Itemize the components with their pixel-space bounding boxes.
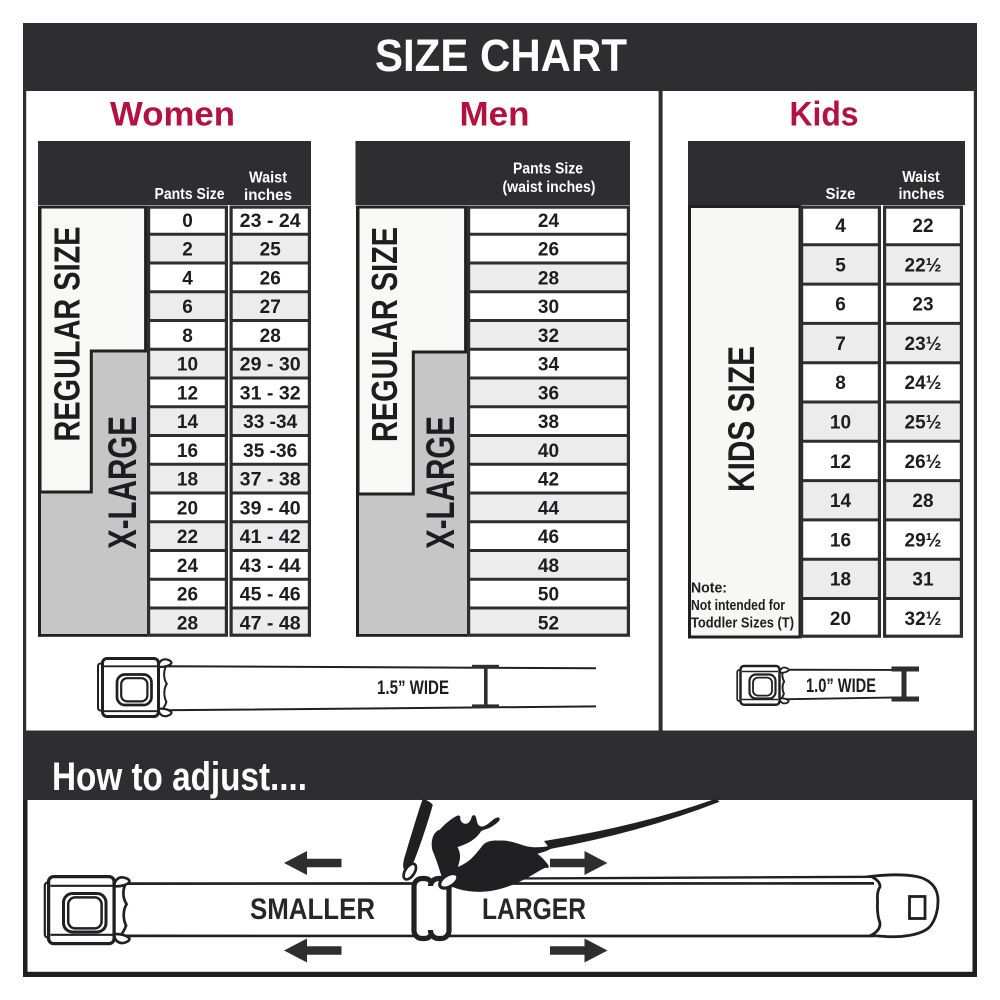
svg-text:7: 7 <box>835 334 846 355</box>
svg-text:18: 18 <box>830 570 851 591</box>
svg-text:44: 44 <box>538 498 560 519</box>
svg-text:8: 8 <box>835 373 846 394</box>
svg-text:26: 26 <box>177 585 198 606</box>
svg-text:36: 36 <box>538 383 559 404</box>
svg-text:Note:: Note: <box>691 581 727 597</box>
svg-text:25: 25 <box>260 240 282 261</box>
svg-text:REGULAR SIZE: REGULAR SIZE <box>364 227 405 442</box>
svg-text:Pants Size: Pants Size <box>513 161 583 178</box>
svg-text:24: 24 <box>538 211 560 232</box>
svg-text:52: 52 <box>538 613 559 634</box>
svg-text:Waist: Waist <box>249 170 288 187</box>
svg-text:27: 27 <box>260 297 281 318</box>
svg-text:(waist inches): (waist inches) <box>503 179 596 196</box>
svg-text:16: 16 <box>177 441 198 462</box>
svg-text:48: 48 <box>538 556 559 577</box>
svg-text:28: 28 <box>538 268 559 289</box>
svg-text:10: 10 <box>177 355 198 376</box>
svg-text:28: 28 <box>177 613 198 634</box>
svg-text:28: 28 <box>912 491 933 512</box>
svg-text:LARGER: LARGER <box>482 893 586 926</box>
svg-text:Men: Men <box>460 96 530 134</box>
svg-text:23½: 23½ <box>905 334 942 355</box>
svg-text:Not intended for: Not intended for <box>691 598 785 614</box>
svg-text:24½: 24½ <box>905 373 942 394</box>
svg-text:14: 14 <box>830 491 852 512</box>
svg-text:Pants Size: Pants Size <box>155 186 225 203</box>
svg-text:29 - 30: 29 - 30 <box>240 355 301 376</box>
svg-text:Women: Women <box>110 96 235 134</box>
svg-text:X-LARGE: X-LARGE <box>419 416 463 549</box>
svg-text:38: 38 <box>538 412 559 433</box>
svg-text:SIZE CHART: SIZE CHART <box>375 30 627 81</box>
svg-text:26: 26 <box>260 268 281 289</box>
svg-text:33 -34: 33 -34 <box>243 412 297 433</box>
svg-text:20: 20 <box>177 498 198 519</box>
svg-text:0: 0 <box>182 211 193 232</box>
svg-text:39 - 40: 39 - 40 <box>240 498 301 519</box>
svg-text:34: 34 <box>538 355 560 376</box>
svg-text:inches: inches <box>899 186 945 203</box>
svg-text:Size: Size <box>826 186 856 203</box>
svg-text:12: 12 <box>177 383 198 404</box>
svg-text:REGULAR SIZE: REGULAR SIZE <box>47 227 88 442</box>
svg-text:2: 2 <box>182 240 193 261</box>
svg-text:14: 14 <box>177 412 199 433</box>
svg-text:31: 31 <box>912 570 934 591</box>
svg-text:4: 4 <box>182 268 193 289</box>
svg-text:6: 6 <box>182 297 193 318</box>
svg-text:16: 16 <box>830 530 851 551</box>
svg-text:18: 18 <box>177 470 198 491</box>
svg-text:10: 10 <box>830 413 851 434</box>
svg-text:29½: 29½ <box>905 530 942 551</box>
svg-text:40: 40 <box>538 441 559 462</box>
svg-text:35 -36: 35 -36 <box>243 441 297 462</box>
svg-text:42: 42 <box>538 470 559 491</box>
svg-text:24: 24 <box>177 556 199 577</box>
svg-text:4: 4 <box>835 216 846 237</box>
svg-text:20: 20 <box>830 609 851 630</box>
svg-text:Waist: Waist <box>902 169 940 186</box>
svg-text:43 - 44: 43 - 44 <box>240 556 301 577</box>
svg-text:23 - 24: 23 - 24 <box>240 211 301 232</box>
svg-text:23: 23 <box>912 295 933 316</box>
svg-text:12: 12 <box>830 452 851 473</box>
svg-text:45 - 46: 45 - 46 <box>240 585 301 606</box>
svg-text:6: 6 <box>835 295 846 316</box>
svg-text:46: 46 <box>538 527 559 548</box>
svg-text:30: 30 <box>538 297 559 318</box>
svg-text:Kids: Kids <box>790 96 859 134</box>
svg-text:5: 5 <box>835 255 846 276</box>
svg-text:31 - 32: 31 - 32 <box>240 383 301 404</box>
svg-text:8: 8 <box>182 326 193 347</box>
svg-text:How to adjust....: How to adjust.... <box>52 755 307 799</box>
svg-text:41 - 42: 41 - 42 <box>240 527 301 548</box>
svg-text:22: 22 <box>912 216 933 237</box>
svg-text:32: 32 <box>538 326 559 347</box>
svg-text:26½: 26½ <box>905 452 942 473</box>
svg-text:47 - 48: 47 - 48 <box>240 613 301 634</box>
svg-text:Toddler Sizes (T): Toddler Sizes (T) <box>691 616 794 632</box>
svg-text:1.0” WIDE: 1.0” WIDE <box>806 676 876 697</box>
svg-text:32½: 32½ <box>905 609 942 630</box>
svg-text:1.5” WIDE: 1.5” WIDE <box>377 678 449 699</box>
svg-text:22: 22 <box>177 527 198 548</box>
svg-text:SMALLER: SMALLER <box>250 893 375 926</box>
svg-text:X-LARGE: X-LARGE <box>101 416 145 549</box>
svg-text:50: 50 <box>538 585 559 606</box>
svg-text:25½: 25½ <box>905 413 942 434</box>
svg-text:37 - 38: 37 - 38 <box>240 470 301 491</box>
svg-text:22½: 22½ <box>905 255 942 276</box>
svg-text:inches: inches <box>244 187 292 204</box>
svg-text:KIDS SIZE: KIDS SIZE <box>721 346 762 492</box>
svg-text:26: 26 <box>538 240 559 261</box>
svg-text:28: 28 <box>260 326 281 347</box>
